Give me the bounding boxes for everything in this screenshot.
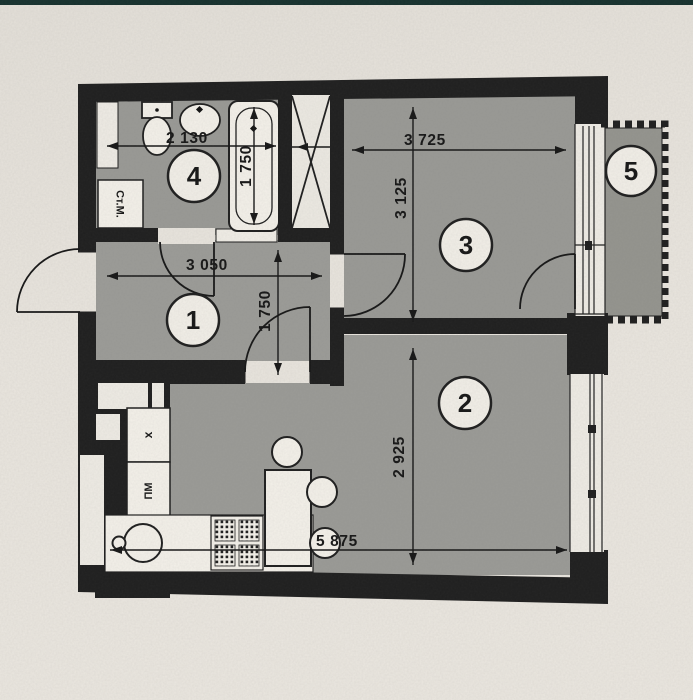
- photo-grain-overlay: [0, 0, 693, 700]
- floorplan-drawing: Ст.М. x ПМ: [0, 0, 693, 700]
- floorplan-photo: Ст.М. x ПМ: [0, 0, 693, 700]
